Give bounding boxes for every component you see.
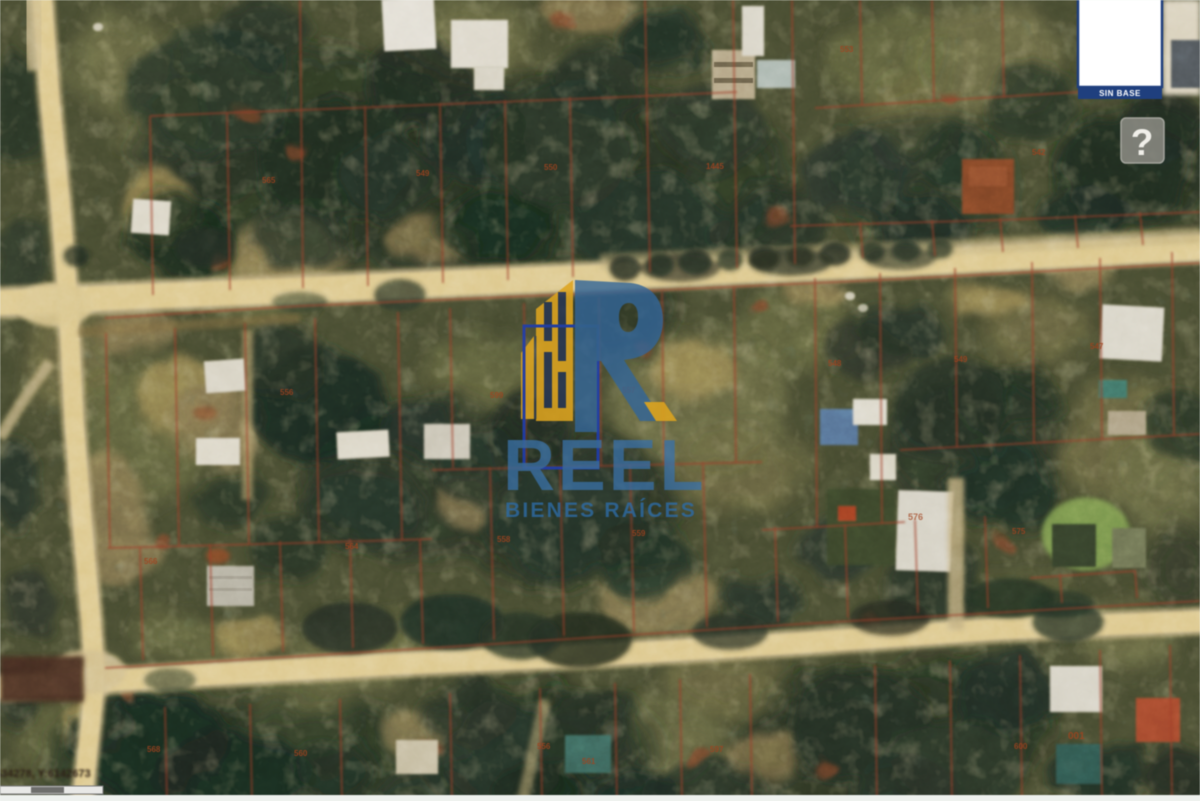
svg-text:559: 559 [632, 529, 646, 538]
svg-text:?: ? [1131, 122, 1154, 163]
svg-text:548: 548 [828, 359, 842, 368]
svg-text:547: 547 [1090, 342, 1104, 351]
svg-text:556: 556 [537, 742, 551, 751]
svg-text:565: 565 [262, 176, 276, 185]
svg-text:566: 566 [144, 557, 158, 566]
svg-text:SIN BASE: SIN BASE [1099, 89, 1141, 98]
svg-text:576: 576 [908, 512, 923, 522]
svg-text:558: 558 [497, 535, 511, 544]
svg-text:560: 560 [294, 749, 308, 758]
svg-text:549: 549 [416, 169, 430, 178]
svg-text:561: 561 [582, 757, 596, 766]
svg-text:564: 564 [345, 542, 359, 551]
svg-text:600: 600 [1014, 742, 1028, 751]
svg-text:X:634278, Y:6142673: X:634278, Y:6142673 [0, 768, 91, 780]
svg-text:553: 553 [840, 45, 854, 54]
svg-text:REEL: REEL [503, 426, 706, 506]
svg-text:575: 575 [1012, 527, 1026, 536]
svg-text:001: 001 [1068, 731, 1085, 742]
svg-text:542: 542 [1032, 148, 1046, 157]
svg-text:1445: 1445 [706, 162, 724, 171]
svg-text:549: 549 [954, 355, 968, 364]
svg-text:BIENES RAÍCES: BIENES RAÍCES [505, 499, 697, 522]
svg-text:599: 599 [490, 391, 504, 400]
svg-text:568: 568 [147, 745, 161, 754]
svg-text:550: 550 [544, 163, 558, 172]
svg-text:597: 597 [710, 745, 724, 754]
svg-text:556: 556 [280, 388, 294, 397]
